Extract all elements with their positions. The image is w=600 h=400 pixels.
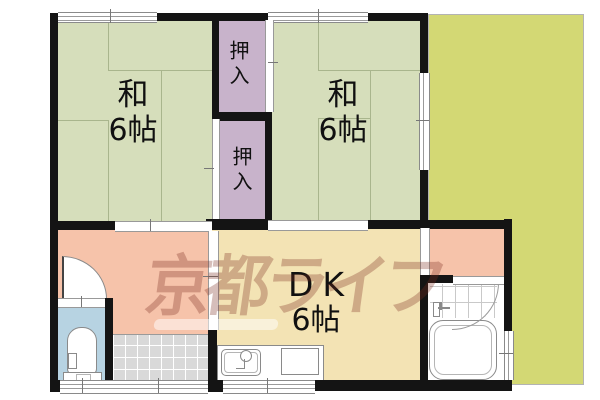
tatami-line (318, 20, 319, 70)
window (223, 380, 315, 394)
wall (265, 112, 272, 228)
wall (50, 221, 115, 230)
wall (212, 13, 219, 119)
wall (50, 13, 58, 392)
door-tick (204, 168, 214, 169)
wall (504, 219, 512, 331)
wall (208, 380, 223, 392)
window-tick (82, 378, 83, 393)
watermark-sub-strip (153, 319, 279, 330)
door-tick (81, 296, 82, 307)
door-tick (150, 219, 151, 231)
room-name: 和 (78, 78, 188, 114)
window-tick (267, 378, 268, 393)
tiled-kitchen-floor (113, 334, 208, 382)
wall (208, 330, 217, 384)
washitsu-2-label: 和 6帖 (288, 78, 398, 148)
wall (206, 219, 272, 230)
oshiire-2-label: 押入 (229, 146, 252, 196)
wall (368, 220, 512, 229)
sliding-door (115, 221, 212, 232)
window-tick (110, 9, 111, 23)
closet-door (265, 20, 274, 112)
tatami-line (108, 20, 109, 70)
washitsu-1-label: 和 6帖 (78, 78, 188, 148)
wall (50, 380, 60, 392)
wall (420, 13, 428, 73)
closet-door (212, 119, 220, 219)
bathroom-door (453, 276, 504, 285)
agency-watermark: 京都ライフ (141, 254, 445, 320)
sliding-door (268, 220, 368, 231)
window-tick (318, 9, 319, 23)
oshiire-1-label: 押入 (226, 40, 249, 90)
window-tick (158, 378, 159, 393)
wall (212, 112, 272, 121)
window (58, 12, 157, 23)
window-tick (499, 353, 513, 354)
room-size: 6帖 (288, 114, 398, 149)
bathtub-inner (434, 325, 492, 375)
room-size: 6帖 (78, 114, 188, 149)
bath-faucet-handle (440, 302, 442, 310)
toilet-control-box (68, 353, 77, 369)
room-name: 和 (288, 78, 398, 114)
window (504, 331, 514, 380)
wall (105, 298, 113, 384)
window-tick (416, 120, 429, 121)
floorplan: 和 6帖 和 6帖 DK 6帖 押入 押入 京都ライフ (0, 0, 600, 400)
door-tick (268, 62, 278, 63)
wall (315, 380, 512, 391)
window (419, 73, 430, 170)
kitchen-stove (281, 348, 319, 375)
tatami-line (318, 70, 420, 71)
kitchen-faucet-spout (236, 368, 245, 369)
kitchen-faucet (240, 350, 252, 362)
wall (368, 13, 428, 21)
tatami-line (108, 70, 212, 71)
